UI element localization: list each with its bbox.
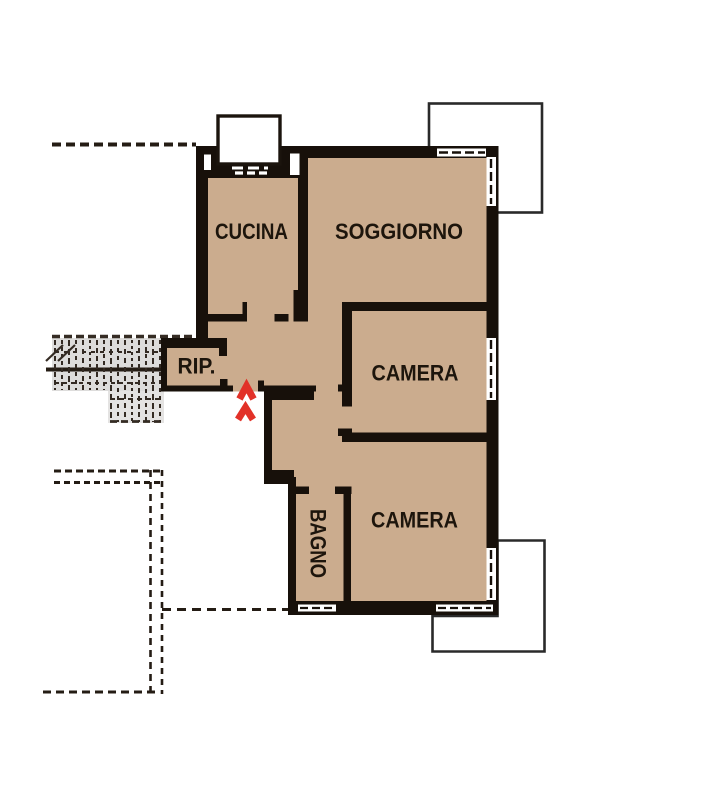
svg-text:RIP.: RIP. — [178, 354, 216, 379]
svg-text:CUCINA: CUCINA — [215, 219, 288, 244]
svg-text:CAMERA: CAMERA — [371, 508, 458, 533]
svg-text:SOGGIORNO: SOGGIORNO — [335, 219, 463, 244]
svg-text:CAMERA: CAMERA — [372, 361, 459, 386]
svg-text:BAGNO: BAGNO — [306, 509, 331, 578]
